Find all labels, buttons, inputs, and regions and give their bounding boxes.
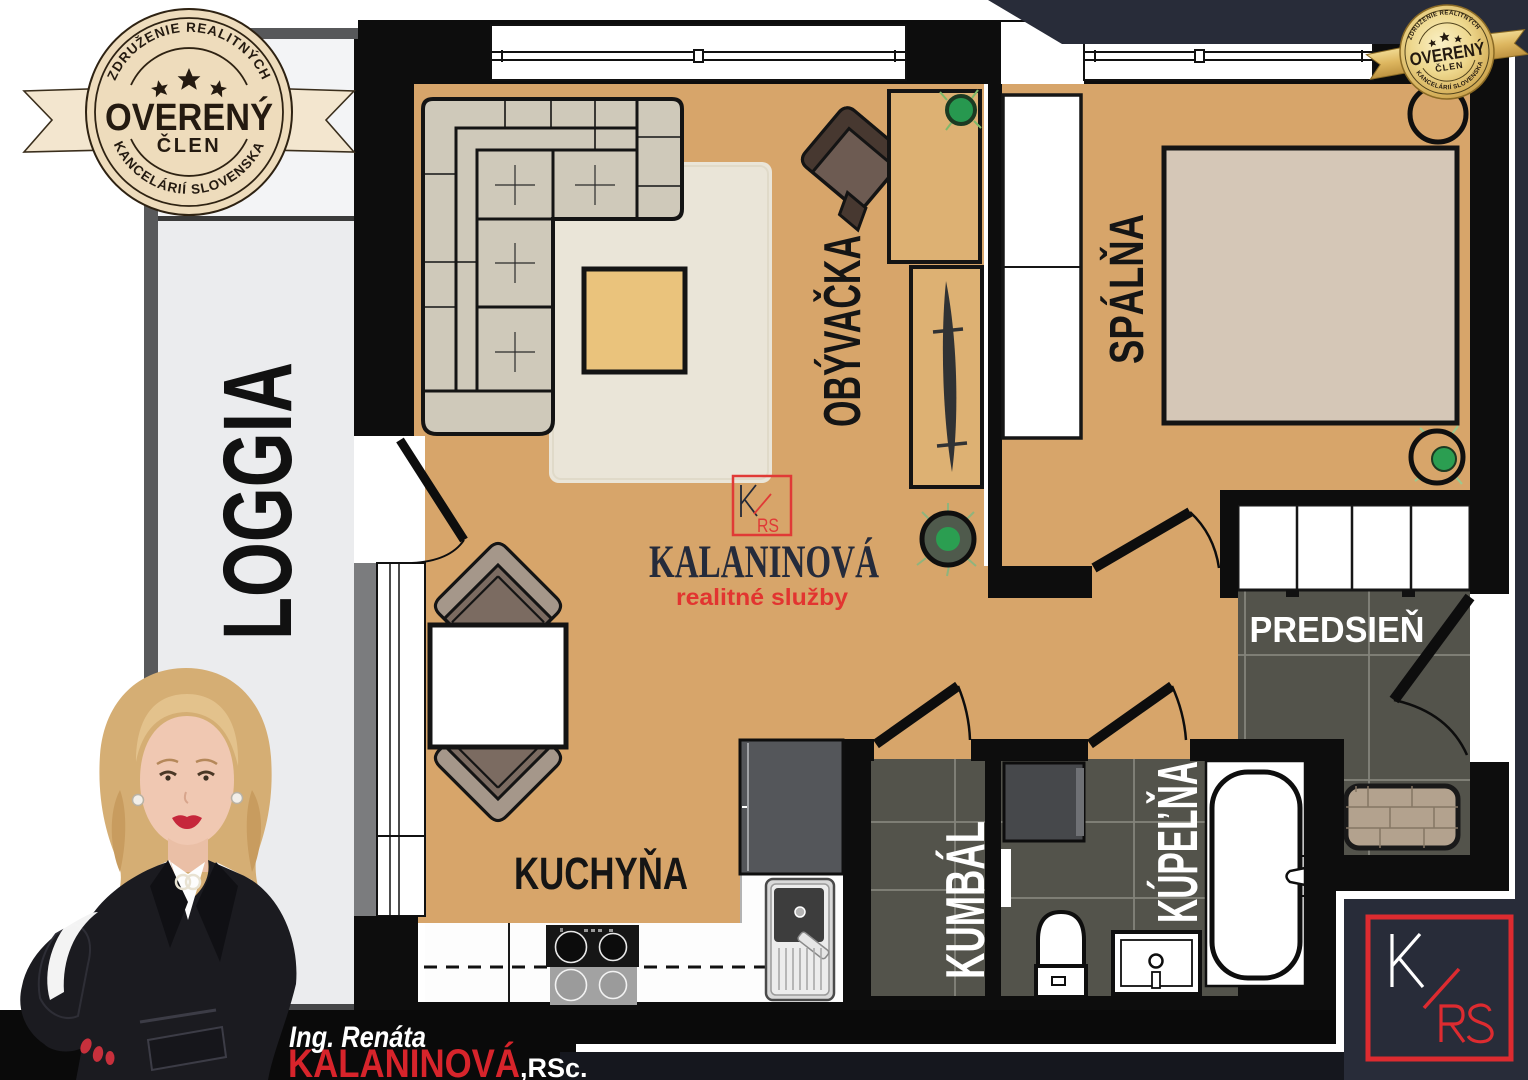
- svg-text:RS: RS: [757, 516, 779, 537]
- svg-text:realitné služby: realitné služby: [676, 584, 848, 610]
- svg-text:KUMBÁL: KUMBÁL: [934, 821, 996, 979]
- svg-text:KÚPEĽŇA: KÚPEĽŇA: [1145, 761, 1210, 923]
- svg-text:OVERENÝ: OVERENÝ: [105, 95, 273, 139]
- svg-text:PREDSIEŇ: PREDSIEŇ: [1250, 608, 1425, 650]
- svg-text:KUCHYŇA: KUCHYŇA: [514, 848, 688, 899]
- svg-text:,RSc.: ,RSc.: [520, 1053, 588, 1080]
- svg-text:SPÁLŇA: SPÁLŇA: [1099, 214, 1154, 364]
- svg-text:KALANINOVÁ: KALANINOVÁ: [649, 536, 879, 588]
- svg-text:KALANINOVÁ: KALANINOVÁ: [288, 1041, 520, 1080]
- svg-text:LOGGIA: LOGGIA: [203, 362, 312, 640]
- svg-text:ČLEN: ČLEN: [157, 133, 221, 157]
- svg-text:OBÝVAČKA: OBÝVAČKA: [813, 235, 872, 427]
